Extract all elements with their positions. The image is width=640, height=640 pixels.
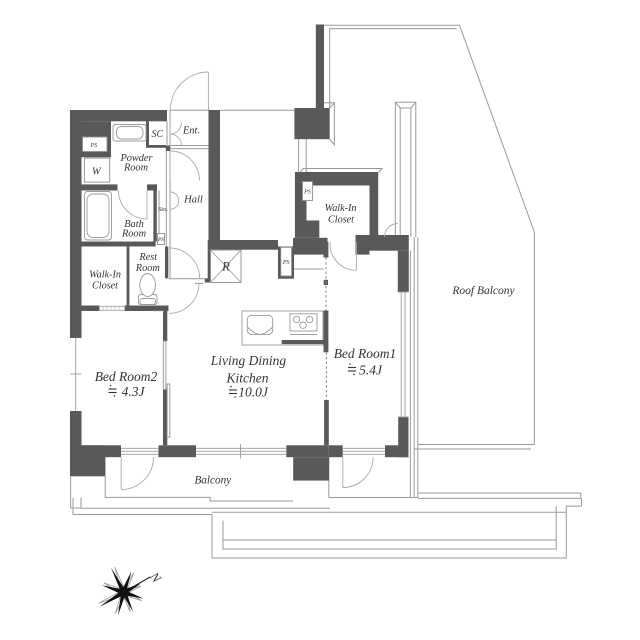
svg-text:Hall: Hall [183,195,203,206]
svg-text:Roof Balcony: Roof Balcony [451,285,515,297]
svg-text:Ent.: Ent. [182,126,200,137]
svg-text:Bed Room2: Bed Room2 [95,369,158,384]
svg-text:R: R [221,260,230,274]
svg-text:4.3J: 4.3J [122,384,146,399]
svg-text:W: W [92,167,102,178]
svg-text:PS: PS [157,237,164,243]
svg-text:Balcony: Balcony [194,475,231,487]
svg-text:Sto.: Sto. [158,206,168,213]
svg-text:5.4J: 5.4J [359,363,383,378]
svg-text:Room: Room [123,163,148,174]
svg-text:Walk-In: Walk-In [89,270,121,281]
svg-text:PS: PS [303,190,311,196]
svg-text:Room: Room [135,263,160,274]
svg-text:PS: PS [89,143,97,149]
svg-text:Living Dining: Living Dining [210,353,287,368]
svg-text:10.0J: 10.0J [238,385,269,400]
svg-text:Walk-In: Walk-In [325,203,357,214]
svg-text:SC: SC [151,129,163,140]
svg-text:Kitchen: Kitchen [226,370,269,385]
svg-text:Room: Room [121,229,146,240]
svg-text:Closet: Closet [328,215,355,226]
svg-text:Bed Room1: Bed Room1 [334,346,397,361]
svg-text:Rest: Rest [138,252,158,263]
svg-text:PS: PS [282,260,290,266]
svg-text:Closet: Closet [92,281,119,292]
